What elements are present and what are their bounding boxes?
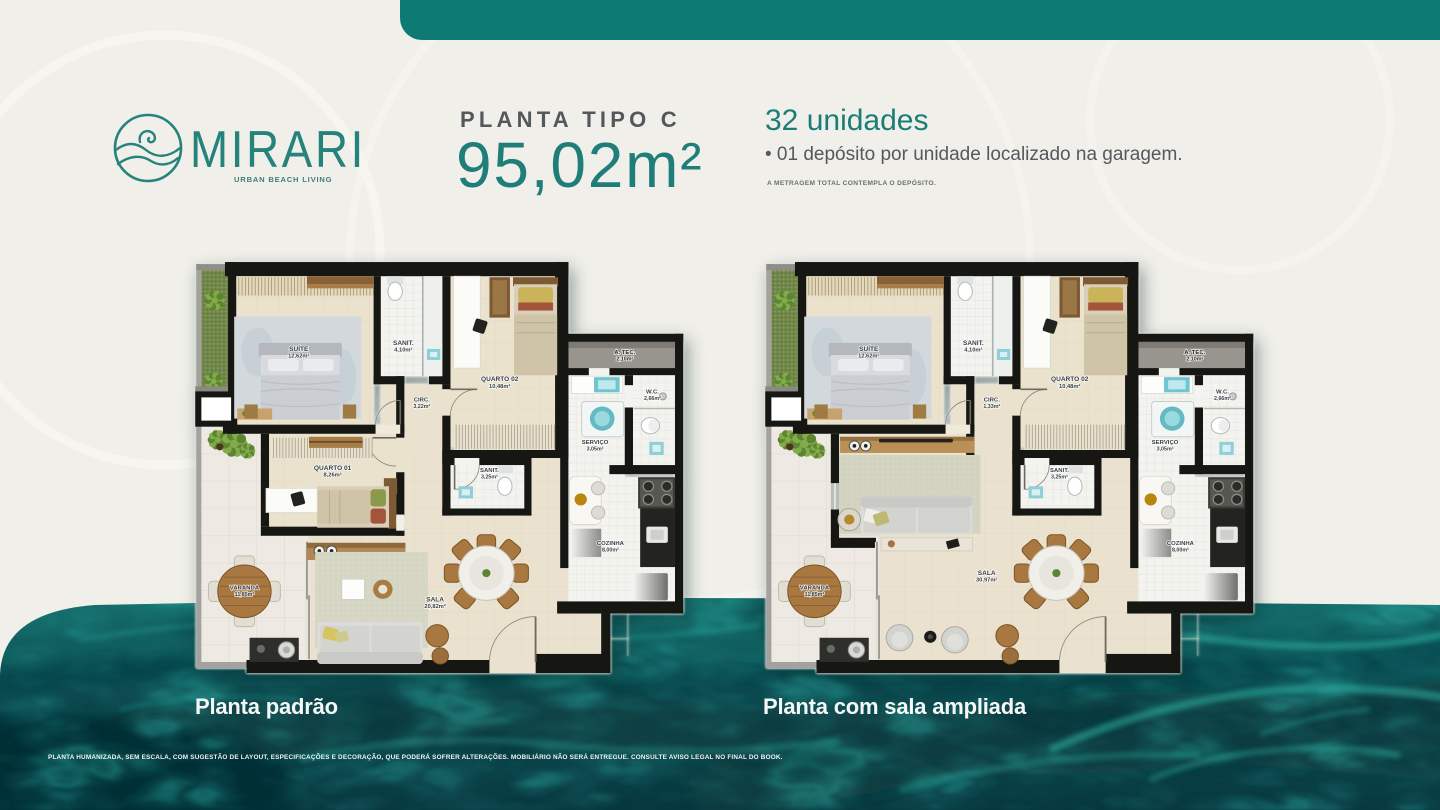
svg-text:12,62m²: 12,62m² xyxy=(858,352,879,359)
svg-text:4,10m²: 4,10m² xyxy=(394,346,412,353)
svg-text:3,05m²: 3,05m² xyxy=(586,446,603,452)
svg-text:SALA: SALA xyxy=(977,570,995,577)
svg-text:SERVIÇO: SERVIÇO xyxy=(1151,440,1178,446)
svg-text:30,97m²: 30,97m² xyxy=(976,577,997,584)
svg-text:CIRC.: CIRC. xyxy=(413,397,430,403)
svg-text:COZINHA: COZINHA xyxy=(1167,541,1195,547)
svg-text:QUARTO 02: QUARTO 02 xyxy=(481,376,519,383)
svg-text:SUÍTE: SUÍTE xyxy=(859,344,879,353)
svg-text:8,00m²: 8,00m² xyxy=(602,547,619,553)
svg-text:A. TEC.: A. TEC. xyxy=(614,350,635,356)
svg-text:1,33m²: 1,33m² xyxy=(983,404,1000,410)
svg-text:SANIT.: SANIT. xyxy=(1050,468,1069,474)
svg-text:W.C.: W.C. xyxy=(646,389,659,395)
svg-text:3,22m²: 3,22m² xyxy=(413,404,430,410)
svg-text:VARANDA: VARANDA xyxy=(230,585,260,591)
svg-text:W.C.: W.C. xyxy=(1216,389,1229,395)
svg-text:12,62m²: 12,62m² xyxy=(288,352,309,359)
svg-text:2,66m²: 2,66m² xyxy=(1214,396,1231,402)
svg-text:3,25m²: 3,25m² xyxy=(1051,475,1068,481)
svg-text:SANIT.: SANIT. xyxy=(480,468,499,474)
svg-text:8,26m²: 8,26m² xyxy=(323,472,341,479)
svg-text:4,10m²: 4,10m² xyxy=(964,346,982,353)
svg-text:A. TEC.: A. TEC. xyxy=(1184,350,1205,356)
svg-text:SALA: SALA xyxy=(426,596,444,603)
svg-text:SANIT.: SANIT. xyxy=(393,340,414,347)
svg-text:20,82m²: 20,82m² xyxy=(424,603,445,610)
svg-text:11,85m²: 11,85m² xyxy=(234,592,254,598)
svg-text:3,05m²: 3,05m² xyxy=(1156,446,1173,452)
svg-text:2,66m²: 2,66m² xyxy=(644,396,661,402)
svg-text:QUARTO 02: QUARTO 02 xyxy=(1051,376,1089,383)
svg-text:SANIT.: SANIT. xyxy=(963,340,984,347)
svg-text:COZINHA: COZINHA xyxy=(597,541,625,547)
svg-text:2,10m²: 2,10m² xyxy=(616,356,633,362)
svg-text:2,10m²: 2,10m² xyxy=(1186,356,1203,362)
svg-text:QUARTO 01: QUARTO 01 xyxy=(314,465,352,472)
svg-text:8,00m²: 8,00m² xyxy=(1172,547,1189,553)
svg-text:SERVIÇO: SERVIÇO xyxy=(581,440,608,446)
svg-text:3,25m²: 3,25m² xyxy=(481,475,498,481)
svg-text:CIRC.: CIRC. xyxy=(983,397,1000,403)
svg-text:VARANDA: VARANDA xyxy=(800,585,830,591)
svg-text:10,48m²: 10,48m² xyxy=(1059,383,1080,390)
svg-text:10,48m²: 10,48m² xyxy=(489,383,510,390)
svg-text:11,85m²: 11,85m² xyxy=(804,592,824,598)
svg-text:SUÍTE: SUÍTE xyxy=(289,344,309,353)
